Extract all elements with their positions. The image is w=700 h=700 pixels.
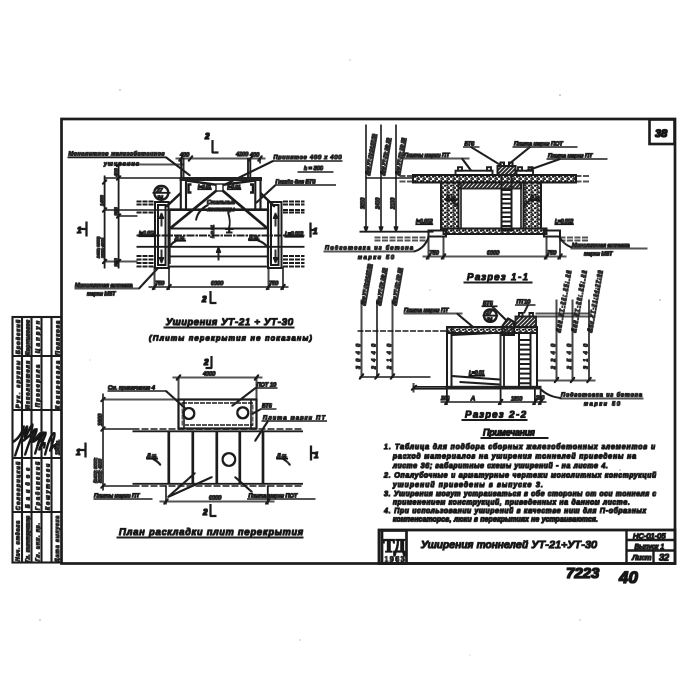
svg-text:38: 38 [655, 128, 668, 140]
svg-text:34: 34 [157, 195, 163, 201]
svg-text:750: 750 [430, 251, 440, 257]
svg-text:Плита марки ПТ: Плита марки ПТ [263, 416, 326, 422]
svg-text:листе 36; габаритные схемы уши: листе 36; габаритные схемы уширений - на… [392, 462, 608, 470]
svg-text:750: 750 [269, 281, 279, 287]
svg-text:L=0.002: L=0.002 [555, 219, 573, 225]
svg-text:200: 200 [535, 396, 545, 402]
svg-text:Лист: Лист [631, 553, 651, 562]
svg-text:L=0.002: L=0.002 [285, 232, 303, 238]
svg-text:2100: 2100 [391, 198, 397, 210]
svg-text:7223: 7223 [566, 565, 600, 582]
svg-text:400: 400 [250, 153, 260, 159]
svg-text:i=0.002: i=0.002 [139, 231, 156, 237]
svg-text:2: 2 [204, 132, 210, 141]
svg-text:4000: 4000 [203, 372, 216, 378]
svg-text:34: 34 [487, 318, 493, 324]
svg-text:6000: 6000 [487, 251, 500, 257]
svg-text:750: 750 [547, 251, 557, 257]
svg-text:компенсаторов, люки в перекрыт: компенсаторов, люки в перекрытиях не уст… [393, 517, 598, 524]
svg-text:ПТ10: ПТ10 [517, 300, 532, 306]
svg-text:Монолитная вставка: Монолитная вставка [75, 283, 132, 289]
svg-text:i=0.01: i=0.01 [210, 224, 216, 238]
svg-text:3000: 3000 [361, 198, 367, 209]
svg-text:применением конструкций, приве: применением конструкций, приведенных на … [393, 499, 630, 507]
svg-text:План раскладки плит перекры: План раскладки плит перекрытия [119, 527, 303, 538]
svg-text:Примечания: Примечания [483, 428, 535, 438]
svg-text:Исполнителя: Исполнителя [26, 361, 32, 409]
svg-text:200: 200 [440, 396, 450, 402]
svg-text:уширений приведены в выпуске 3: уширений приведены в выпуске 3. [392, 481, 543, 489]
svg-text:БТ6: БТ6 [465, 142, 476, 148]
svg-text:1400: 1400 [100, 195, 106, 206]
svg-text:марки М8Т: марки М8Т [584, 252, 613, 258]
svg-text:750: 750 [155, 281, 165, 287]
svg-text:i=0.01: i=0.01 [228, 184, 242, 190]
svg-text:Корниловос: Корниловос [26, 320, 32, 355]
svg-text:2: 2 [201, 295, 207, 304]
svg-text:Подготовка из бетона: Подготовка из бетона [561, 393, 642, 399]
svg-text:Монолитное железобетонное: Монолитное железобетонное [69, 152, 165, 158]
svg-text:Д.ш.: Д.ш. [174, 236, 185, 242]
svg-text:i=0.002: i=0.002 [416, 219, 433, 225]
svg-text:Д.ш.: Д.ш. [276, 454, 287, 460]
svg-text:3. Уширения могут устраиваться: 3. Уширения могут устраиваться в обе сто… [384, 490, 657, 498]
svg-text:4. При использовании уширений: 4. При использовании уширений в качестве… [384, 507, 647, 515]
svg-text:Кошутееви: Кошутееви [46, 464, 52, 510]
svg-text:Д.ш.: Д.ш. [445, 195, 456, 201]
svg-text:950: 950 [114, 207, 120, 215]
svg-text:2: 2 [203, 358, 209, 367]
svg-text:L=0.01: L=0.01 [469, 371, 485, 377]
svg-text:Дата выпуска: Дата выпуска [55, 516, 61, 563]
svg-text:См. примечание 4: См. примечание 4 [108, 386, 155, 392]
svg-text:Выпуск 1: Выпуск 1 [635, 544, 665, 551]
svg-text:1963г.: 1963г. [56, 439, 62, 455]
svg-text:900: 900 [114, 258, 120, 266]
svg-text:27: 27 [156, 188, 164, 194]
svg-text:Гл. конструктор: Гл. конструктор [26, 516, 32, 562]
svg-text:2. Опалубочные и арматурные че: 2. Опалубочные и арматурные чертежи моно… [383, 472, 656, 480]
svg-text:Плита марки ПТ: Плита марки ПТ [404, 308, 449, 314]
svg-text:h = 300: h = 300 [304, 166, 324, 172]
svg-text:i=0.01: i=0.01 [198, 184, 212, 190]
svg-text:Проверила: Проверила [36, 365, 42, 407]
svg-text:Соловрицкий: Соловрицкий [15, 462, 22, 510]
svg-text:Нач. отдела: Нач. отдела [16, 521, 22, 561]
svg-text:6000: 6000 [211, 281, 224, 287]
svg-text:(Плиты перекрытия не показаны): (Плиты перекрытия не показаны) [149, 334, 313, 343]
svg-text:1800: 1800 [511, 397, 522, 403]
svg-text:БТ6: БТ6 [262, 404, 273, 410]
svg-text:400: 400 [180, 153, 190, 159]
svg-text:1: 1 [313, 227, 318, 236]
svg-text:Стальные: Стальные [207, 200, 235, 206]
svg-text:НС-01-05: НС-01-05 [633, 532, 666, 541]
svg-text:Уширения тоннелей УТ-21÷УТ-30: Уширения тоннелей УТ-21÷УТ-30 [420, 539, 597, 551]
svg-text:1: 1 [77, 226, 82, 235]
svg-text:3600; 4200: 3600; 4200 [100, 237, 105, 258]
svg-text:40: 40 [618, 568, 638, 587]
svg-text:Д.ш.: Д.ш. [248, 235, 259, 241]
svg-text:1. Таблица для подбора сборных: 1. Таблица для подбора сборных железобет… [384, 443, 655, 451]
svg-text:3600); 4200: 3600); 4200 [98, 458, 103, 483]
svg-text:27: 27 [485, 311, 492, 317]
svg-text:4200: 4200 [236, 152, 249, 158]
svg-text:2400: 2400 [376, 198, 382, 210]
svg-text:марки М8Т: марки М8Т [87, 292, 116, 298]
svg-text:Полякова: Полякова [56, 321, 62, 355]
svg-text:Плиты марки ПТ: Плиты марки ПТ [404, 153, 450, 159]
svg-text:Монолитная вставка: Монолитная вставка [572, 243, 629, 249]
svg-text:А: А [470, 397, 475, 403]
svg-text:Гл. инж. пр.: Гл. инж. пр. [36, 523, 42, 561]
svg-text:ПОТ 10: ПОТ 10 [257, 383, 277, 389]
svg-text:Разрез 1-1: Разрез 1-1 [467, 272, 528, 283]
svg-text:Плита марки ПОТ: Плита марки ПОТ [249, 494, 298, 500]
svg-text:Гнездо для БТ6: Гнездо для БТ6 [276, 180, 317, 186]
svg-text:1963: 1963 [385, 555, 405, 564]
svg-text:Д.ш.: Д.ш. [529, 195, 540, 201]
svg-text:Разрез 2-2: Разрез 2-2 [465, 410, 527, 421]
svg-text:Уширения УТ-21 ÷ УТ-30: Уширения УТ-21 ÷ УТ-30 [165, 317, 294, 328]
svg-text:400: 400 [114, 168, 120, 176]
svg-text:Плита марки ПОТ: Плита марки ПОТ [514, 142, 563, 148]
svg-text:1800: 1800 [98, 413, 104, 426]
svg-text:2: 2 [202, 508, 208, 517]
svg-text:расход материалов на уширения: расход материалов на уширения тоннелей п… [392, 453, 636, 461]
svg-text:32: 32 [659, 553, 669, 563]
svg-text:Плита марки ПТ: Плита марки ПТ [548, 154, 593, 160]
svg-text:Д.ш.: Д.ш. [146, 454, 157, 460]
svg-text:Плиты марки ПТ: Плиты марки ПТ [94, 494, 140, 500]
svg-text:Принятое 400 х 400: Принятое 400 х 400 [274, 155, 343, 161]
svg-text:6000: 6000 [209, 496, 222, 502]
